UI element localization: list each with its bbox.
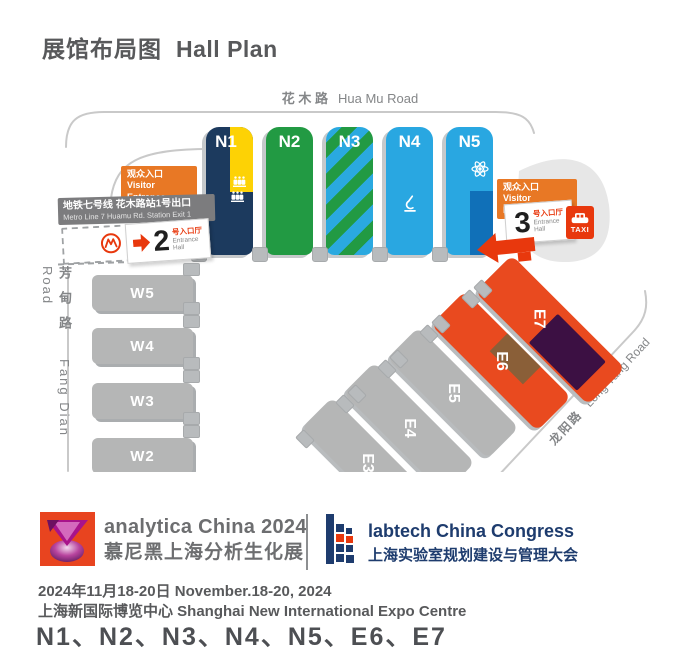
walkway-tab <box>183 357 200 370</box>
hall-n5-label: N5 <box>446 132 493 152</box>
walkway-tab <box>372 247 388 262</box>
fangdian-road-zh: 芳甸路 <box>57 266 72 341</box>
microscope-icon <box>399 193 421 215</box>
hall-n2-label: N2 <box>266 132 313 152</box>
hall-n1[interactable]: N1 <box>206 127 253 255</box>
walkway-tab <box>183 263 200 276</box>
hall-n1-label: N1 <box>209 132 243 152</box>
audience-icon <box>232 176 247 188</box>
event-date: 2024年11月18-20日 November.18-20, 2024 <box>38 580 332 601</box>
analytica-name: analytica China 2024 <box>104 515 307 539</box>
metro-exit-area <box>61 224 133 265</box>
fangdian-road-label: 芳甸路 Fang Dian Road <box>40 266 74 472</box>
entrance-hall-2[interactable]: 2 号入口厅 Entrance Hall <box>125 218 212 264</box>
analytica-name-zh: 慕尼黑上海分析生化展 <box>104 542 307 565</box>
event-halls-list: N1、N2、N3、N4、N5、E6、E7 <box>36 617 447 651</box>
walkway-tab <box>183 425 200 438</box>
hall-e6-label: E6 <box>492 351 510 371</box>
walkway-tab <box>183 412 200 425</box>
taxi-icon <box>570 212 590 225</box>
analytica-logo-icon <box>40 512 95 566</box>
hall-n4-label: N4 <box>386 132 433 152</box>
hall-n3-label: N3 <box>326 132 373 152</box>
audience-icon <box>230 191 245 203</box>
walkway-tab <box>252 247 268 262</box>
entrance-2-en2: Hall <box>173 243 203 253</box>
hall-w5-label: W5 <box>130 285 155 302</box>
walkway-tab <box>183 302 200 315</box>
labtech-name-a: labtech China <box>368 521 486 541</box>
labtech-logo-icon <box>326 514 362 566</box>
huamu-road-en: Hua Mu Road <box>338 91 418 106</box>
taxi-stand-sign: TAXI <box>566 206 594 239</box>
hall-plan-page: 展馆布局图Hall Plan 花 木 路Hua Mu Road 芳甸路 Fang… <box>0 0 700 651</box>
labtech-name-zh: 上海实验室规划建设与管理大会 <box>368 547 578 565</box>
hall-e3-label: E3 <box>358 453 376 472</box>
labtech-logo-text: labtech ChinaCongress 上海实验室规划建设与管理大会 <box>368 521 578 565</box>
hall-n3[interactable]: N3 <box>326 127 373 255</box>
hall-n4[interactable]: N4 <box>386 127 433 255</box>
taxi-label: TAXI <box>571 225 590 234</box>
huamu-road-zh: 花 木 路 <box>282 91 328 106</box>
analytica-logo-text: analytica China 2024 慕尼黑上海分析生化展 <box>104 515 307 565</box>
huamu-road-label: 花 木 路Hua Mu Road <box>220 88 480 107</box>
hall-e4-label: E4 <box>400 418 418 438</box>
hall-w3[interactable]: W3 <box>92 383 193 419</box>
atom-icon <box>470 159 490 179</box>
hall-w4-label: W4 <box>130 338 155 355</box>
hall-w3-label: W3 <box>130 393 155 410</box>
metro-logo-icon <box>99 232 122 255</box>
entrance-3-en2: Hall <box>534 225 564 235</box>
hall-e5-label: E5 <box>444 383 462 403</box>
hall-w4[interactable]: W4 <box>92 328 193 364</box>
walkway-tab <box>312 247 328 262</box>
arrow-right-icon <box>133 232 152 253</box>
walkway-tab <box>432 247 448 262</box>
hall-w2[interactable]: W2 <box>92 438 193 472</box>
hall-n2[interactable]: N2 <box>266 127 313 255</box>
hall-e7-label: E7 <box>530 309 548 329</box>
hall-w5[interactable]: W5 <box>92 275 193 311</box>
hall-map: 花 木 路Hua Mu Road 芳甸路 Fang Dian Road 龙阳路L… <box>0 0 700 472</box>
east-visitor-zh: 观众入口 <box>503 182 539 192</box>
logo-divider <box>306 514 308 570</box>
walkway-tab <box>183 370 200 383</box>
entrance-2-number: 2 <box>152 226 170 256</box>
hall-w2-label: W2 <box>130 448 155 465</box>
walkway-tab <box>183 315 200 328</box>
west-visitor-zh: 观众入口 <box>127 169 163 179</box>
labtech-name-b: Congress <box>491 521 574 541</box>
